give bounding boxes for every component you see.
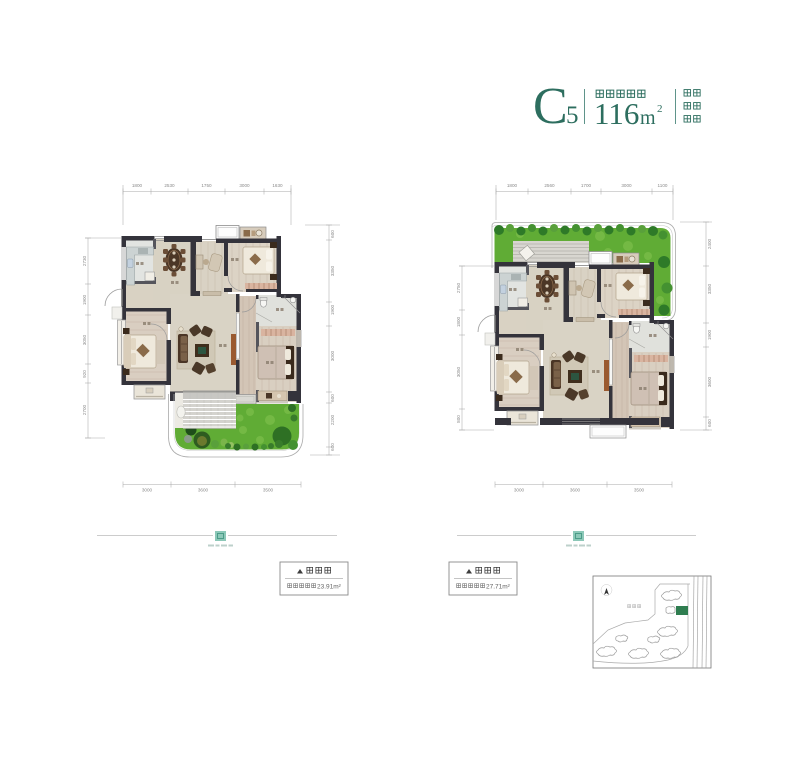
svg-text:3000: 3000 xyxy=(621,183,632,188)
svg-text:3350: 3350 xyxy=(707,283,712,294)
svg-text:1900: 1900 xyxy=(707,329,712,340)
svg-text:920: 920 xyxy=(82,370,87,378)
svg-text:2560: 2560 xyxy=(544,183,555,188)
svg-text:3350: 3350 xyxy=(330,265,335,276)
svg-text:600: 600 xyxy=(707,419,712,427)
svg-text:3050: 3050 xyxy=(82,334,87,345)
svg-text:1800: 1800 xyxy=(456,316,461,327)
svg-text:2700: 2700 xyxy=(82,404,87,415)
svg-text:27.71m²: 27.71m² xyxy=(486,584,511,591)
svg-text:2530: 2530 xyxy=(164,183,175,188)
svg-text:1700: 1700 xyxy=(581,183,592,188)
svg-text:3000: 3000 xyxy=(239,183,250,188)
svg-text:2750: 2750 xyxy=(456,282,461,293)
svg-text:1750: 1750 xyxy=(201,183,212,188)
svg-text:600: 600 xyxy=(330,394,335,402)
svg-text:1800: 1800 xyxy=(132,183,143,188)
svg-text:1630: 1630 xyxy=(272,183,283,188)
svg-text:1900: 1900 xyxy=(330,304,335,315)
svg-text:2200: 2200 xyxy=(330,414,335,425)
svg-text:3600: 3600 xyxy=(198,488,209,493)
svg-text:116: 116 xyxy=(594,96,639,131)
svg-text:3600: 3600 xyxy=(570,488,581,493)
svg-text:23.91m²: 23.91m² xyxy=(317,584,342,591)
svg-text:600: 600 xyxy=(330,230,335,238)
svg-text:m: m xyxy=(640,107,656,129)
svg-text:3000: 3000 xyxy=(514,488,525,493)
svg-text:1100: 1100 xyxy=(658,183,668,188)
svg-text:3500: 3500 xyxy=(634,488,645,493)
svg-text:3600: 3600 xyxy=(707,376,712,387)
svg-text:3500: 3500 xyxy=(263,488,274,493)
svg-text:5: 5 xyxy=(566,102,579,129)
svg-text:1800: 1800 xyxy=(507,183,518,188)
svg-text:3050: 3050 xyxy=(456,366,461,377)
svg-text:2730: 2730 xyxy=(82,255,87,266)
svg-text:C: C xyxy=(533,78,568,135)
svg-text:1900: 1900 xyxy=(82,294,87,305)
svg-text:800: 800 xyxy=(456,415,461,423)
svg-text:3000: 3000 xyxy=(142,488,153,493)
svg-text:2400: 2400 xyxy=(707,238,712,249)
svg-text:3000: 3000 xyxy=(330,350,335,361)
svg-text:600: 600 xyxy=(330,443,335,451)
svg-text:2: 2 xyxy=(657,103,663,115)
